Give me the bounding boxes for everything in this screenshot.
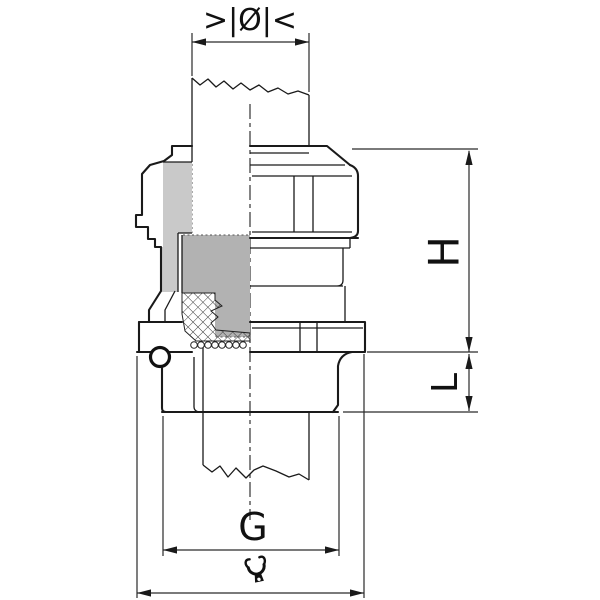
bore-line [194,357,199,412]
section-cut [161,162,250,348]
dimension-h: H [352,149,478,352]
label-h: H [420,236,469,268]
thread-stem [162,352,352,412]
label-g: G [238,505,267,549]
hex-flange [137,322,365,352]
diameter-symbol: >|Ø|< [203,3,297,38]
diagram-canvas: >|Ø|< H L G [0,0,600,600]
dimension-diameter: >|Ø|< [192,3,309,92]
wrench-icon [245,556,269,584]
cable-top [192,78,309,233]
dimension-g: G [163,416,339,556]
cable-break-top [192,78,309,95]
label-l: L [425,373,466,393]
cable-gland-drawing: >|Ø|< H L G [0,0,600,600]
dimension-l: L [343,354,478,412]
cable-break-bottom [203,465,309,480]
seal-bead [191,342,247,349]
cap-hex-facets [294,176,313,232]
left-inner-wall [165,291,175,322]
o-ring [151,348,170,367]
body-exterior [250,238,350,322]
